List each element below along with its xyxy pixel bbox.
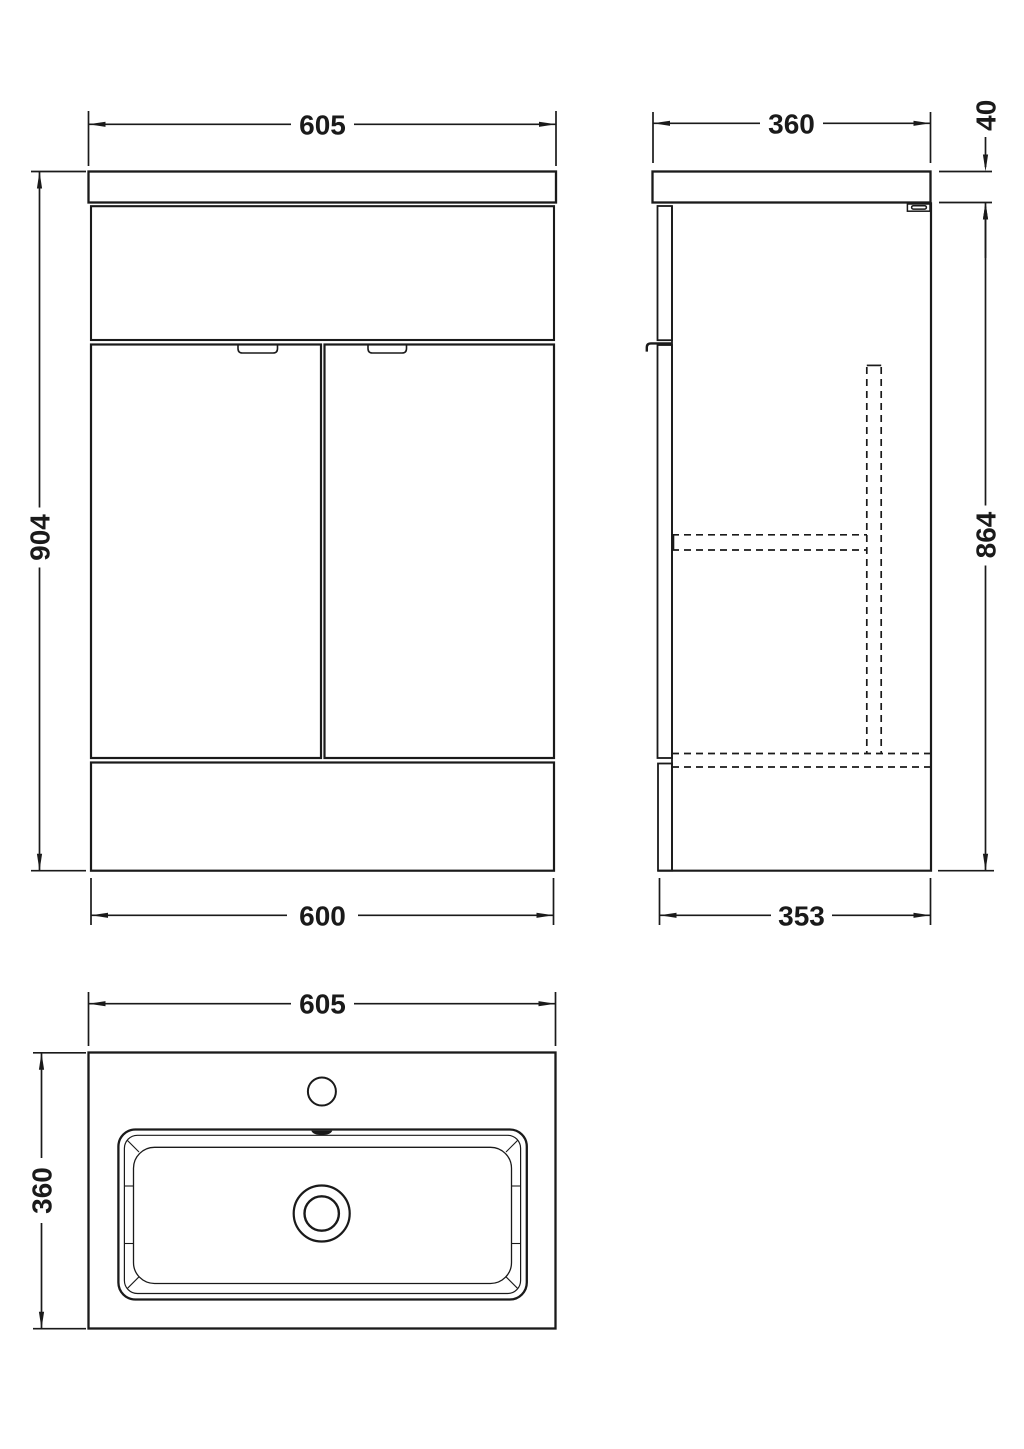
svg-text:360: 360	[27, 1167, 58, 1214]
svg-text:864: 864	[971, 511, 1002, 558]
svg-text:600: 600	[299, 900, 346, 931]
svg-text:40: 40	[971, 100, 1002, 131]
svg-text:904: 904	[25, 514, 56, 561]
svg-text:360: 360	[768, 108, 815, 139]
svg-text:353: 353	[778, 900, 825, 931]
svg-text:605: 605	[299, 989, 346, 1020]
svg-text:605: 605	[299, 109, 346, 140]
